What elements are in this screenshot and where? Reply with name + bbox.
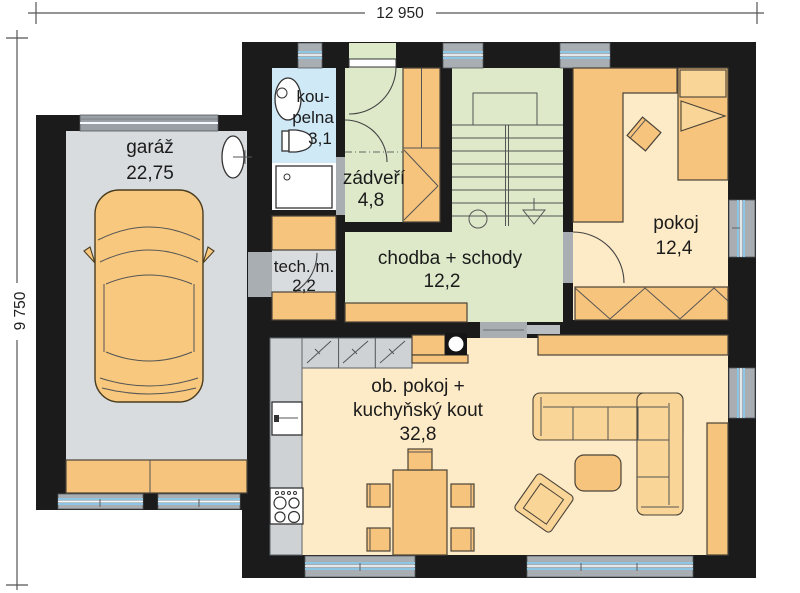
car xyxy=(84,190,214,402)
kitchen-tall-cabinets xyxy=(302,338,412,368)
bed xyxy=(678,68,728,180)
dining-table xyxy=(393,470,447,555)
window-garage-right xyxy=(158,494,240,509)
vestibule-area: 4,8 xyxy=(358,190,384,211)
garage-area: 22,75 xyxy=(126,163,174,184)
kitchen-counter-lip xyxy=(412,355,468,363)
tech-shelf-bottom xyxy=(272,292,336,320)
floor-plan-drawing: 12 950 9 750 xyxy=(0,0,800,593)
bed-pillow xyxy=(680,70,726,97)
kitchen-sink xyxy=(445,333,467,355)
kitchen-sideboard xyxy=(538,335,728,355)
dimension-width-label: 12 950 xyxy=(376,5,424,22)
shower xyxy=(276,166,332,208)
tech-room-label: tech. m. xyxy=(274,257,334,276)
bathroom-label-line2: pelna xyxy=(292,108,334,127)
window-living-bottom-left xyxy=(305,556,415,577)
kitchen-counter-sink-side xyxy=(412,335,445,355)
window-bedroom-top xyxy=(560,43,610,68)
window-stairs xyxy=(443,43,483,68)
refrigerator xyxy=(272,402,302,435)
living-area: 32,8 xyxy=(400,424,437,445)
dining-chair-right-2 xyxy=(451,528,474,551)
hallway-label: chodba + schody xyxy=(378,248,523,269)
dimension-height-label: 9 750 xyxy=(12,291,29,330)
floor-plan: 12 950 9 750 xyxy=(0,0,800,593)
vestibule-wardrobe xyxy=(403,68,440,222)
bedroom-wardrobe xyxy=(575,287,728,320)
window-bathroom xyxy=(298,43,322,68)
living-label-line1: ob. pokoj + xyxy=(371,376,465,397)
living-label-line2: kuchyňský kout xyxy=(353,400,484,421)
garage-workbench xyxy=(66,460,247,493)
living-cabinet xyxy=(707,423,728,555)
dining-chair-left-2 xyxy=(367,528,390,551)
vestibule-label: zádveří xyxy=(343,168,406,189)
garage-label: garáž xyxy=(126,137,174,158)
stove xyxy=(270,488,303,524)
tech-room-area: 2,2 xyxy=(292,276,316,295)
window-living-bottom-right xyxy=(527,556,693,577)
hallway-area: 12,2 xyxy=(424,271,461,292)
dining-chair-right-1 xyxy=(451,484,474,507)
bedroom-area: 12,4 xyxy=(656,238,693,259)
bathroom-area: 3,1 xyxy=(308,129,332,148)
window-bedroom-right xyxy=(729,200,755,257)
dining-chair-left-1 xyxy=(367,484,390,507)
bedroom-label: pokoj xyxy=(653,213,698,234)
hallway-cabinet xyxy=(345,303,467,322)
coffee-table xyxy=(575,455,621,491)
window-garage-left xyxy=(58,494,143,509)
window-living-right xyxy=(729,368,755,418)
garage-door xyxy=(80,115,218,131)
tech-shelf-top xyxy=(272,216,336,250)
bathroom-label-line1: kou- xyxy=(296,87,329,106)
dining-chair-top xyxy=(408,449,432,470)
